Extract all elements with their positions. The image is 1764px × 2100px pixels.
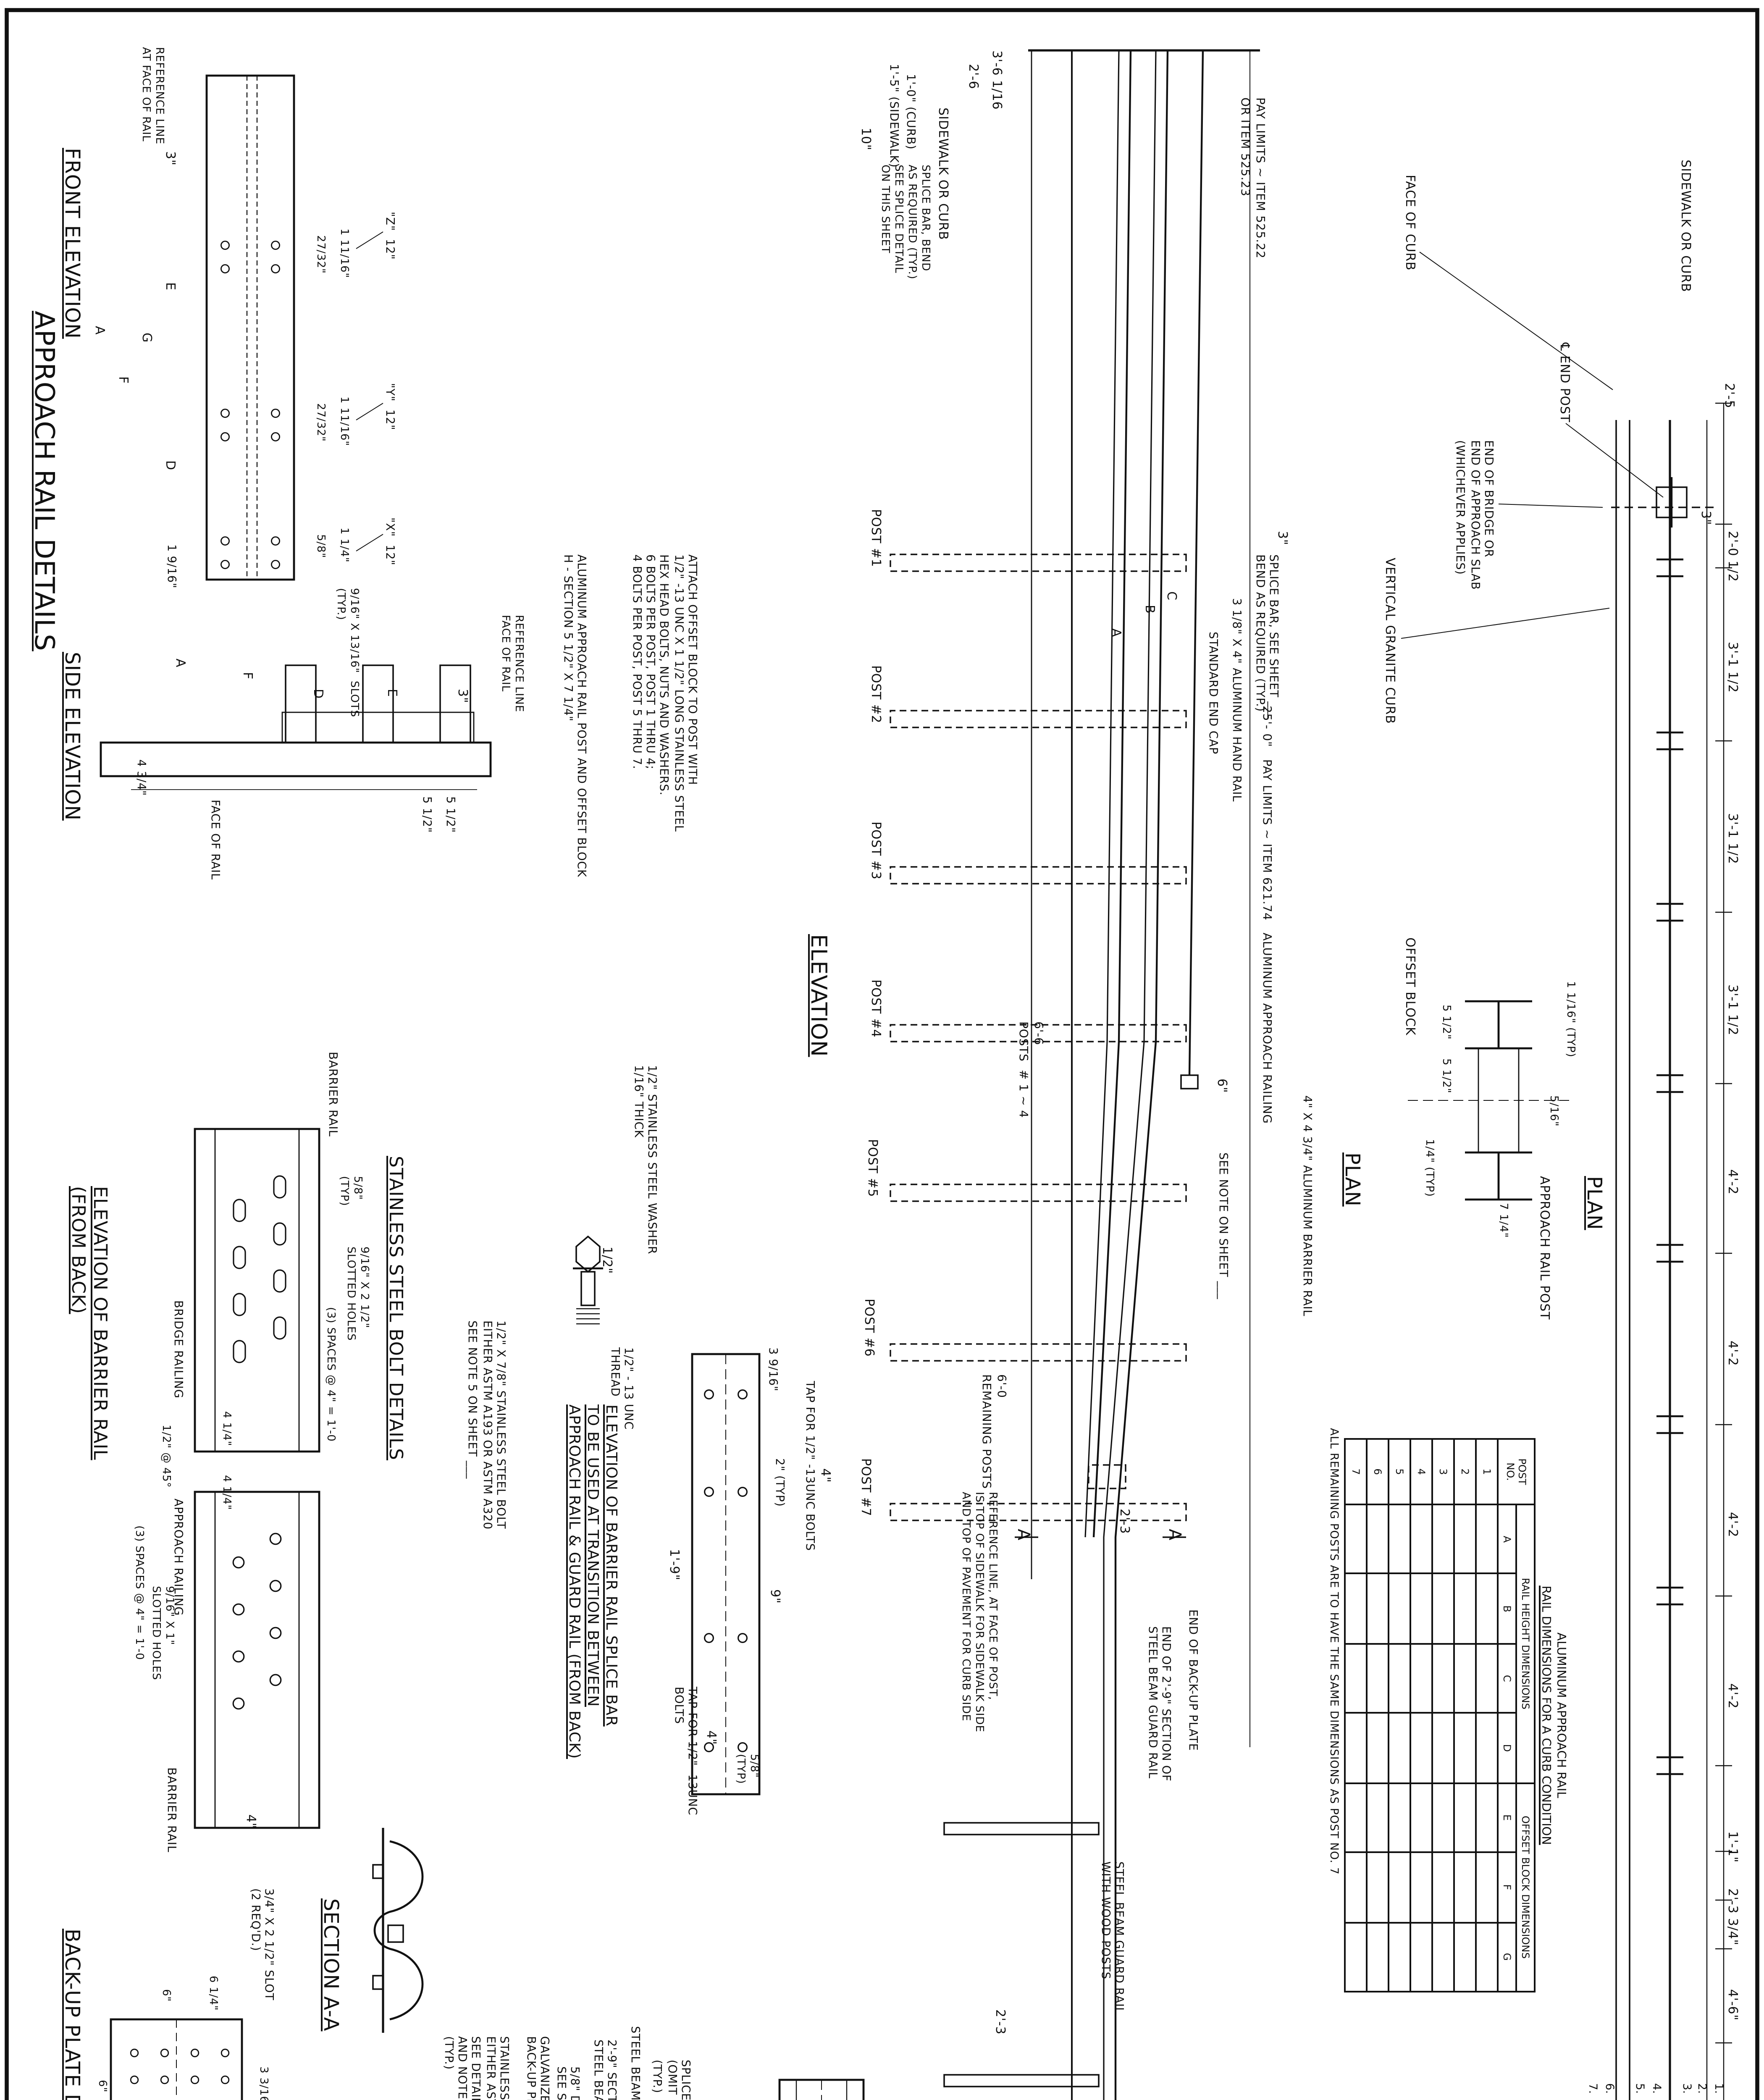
empty-dim-cell	[1476, 1643, 1498, 1713]
post-detail-dim-5-half-a: 5 1/2"	[1438, 1005, 1452, 1039]
post-detail-dim-7-1-4: 7 1/4"	[1495, 1203, 1509, 1238]
brb-slotted-holes-a: 9/16" X 2 1/2" SLOTTED HOLES	[343, 1247, 370, 1341]
empty-dim-cell	[1345, 1783, 1367, 1853]
empty-dim-cell	[1410, 1922, 1432, 1992]
se-dim-5-half-b: 5 1/2"	[420, 796, 433, 833]
empty-dim-cell	[1389, 1713, 1410, 1783]
post-detail-label-approach-rail-post: APPROACH RAIL POST	[1537, 1176, 1552, 1320]
se-dim-E: E	[384, 689, 400, 697]
empty-dim-cell	[1345, 1643, 1367, 1713]
elev-guard-rail-wood-posts: STEEL BEAM GUARD RAIL WITH WOOD POSTS	[1098, 1861, 1126, 2014]
elev-end-of-backup-plate: END OF BACK-UP PLATE	[1186, 1609, 1200, 1751]
empty-dim-cell	[1345, 1504, 1367, 1574]
empty-dim-cell	[1367, 1852, 1389, 1922]
plan-title: PLAN	[1582, 1176, 1606, 1230]
col-G: G	[1498, 1922, 1516, 1992]
bp-slot-2req: 3/4" X 2 1/2" SLOT (2 REQ'D.)	[248, 1888, 276, 2000]
empty-dim-cell	[1389, 1574, 1410, 1644]
sb-dim-4-b: 4"	[703, 1730, 719, 1745]
note-item-5: 5.THE COST OF ALL MATERIALS AND LABOR FO…	[1618, 2083, 1646, 2100]
se-title: SIDE ELEVATION	[60, 652, 84, 821]
se-face-of-rail: FACE OF RAIL	[208, 800, 222, 880]
elev-post-3: POST #3	[868, 822, 884, 879]
se-post-offset-label: ALUMINUM APPROACH RAIL POST AND OFFSET B…	[560, 554, 588, 877]
elev-splice-bar-note: SPLICE BAR, BEND AS REQUIRED (TYP.) SEE …	[877, 165, 931, 279]
col-C: C	[1498, 1643, 1516, 1713]
elev-section-marker-a-top: A	[1162, 1529, 1183, 1541]
elev-title: ELEVATION	[803, 934, 830, 1057]
aa-label-guard-rail: STEEL BEAM GUARD RAIL	[628, 2026, 642, 2100]
elev-post-2: POST #2	[868, 665, 884, 723]
se-dim-4-3-4: 4 3/4"	[134, 759, 148, 796]
brb-dim-4-1-4-b: 4 1/4"	[218, 1475, 232, 1510]
notes-block: NOTES 1.POST 1 THROUGH 7 SHALL BE EXTRUD…	[1570, 2083, 1747, 2100]
note-item-4: 4.SEE STANDARD G-1 FOR STEEL BEAM GUARD …	[1648, 2083, 1662, 2100]
post-detail-plan-title: PLAN	[1340, 1152, 1365, 1207]
brb-title: ELEVATION OF BARRIER RAIL (FROM BACK)	[66, 1186, 111, 1460]
sb-dim-1-9: 1'-9"	[667, 1549, 682, 1580]
col-B: B	[1498, 1574, 1516, 1644]
empty-dim-cell	[1454, 1922, 1476, 1992]
elev-label-barrier-rail: 4" X 4 3/4" ALUMINUM BARRIER RAIL	[1300, 1095, 1314, 1316]
empty-dim-cell	[1454, 1713, 1476, 1783]
sb-dim-4-a: 4"	[818, 1468, 833, 1483]
table-row: 2	[1454, 1439, 1476, 1992]
plan-label-granite-curb: VERTICAL GRANITE CURB	[1382, 558, 1398, 724]
elev-post-1: POST #1	[868, 509, 884, 567]
elev-label-hand-rail: 3 1/8" X 4" ALUMINUM HAND RAIL	[1229, 598, 1243, 802]
aa-label-2-9-section: 2'-9" SECTION OF STEEL BEAM GUARD RAIL	[591, 2040, 618, 2100]
plan-dim-4-2-2: 4'-2	[1725, 1341, 1740, 1366]
se-dim-5-half-a: 5 1/2"	[443, 796, 457, 833]
elev-end-of-2-9-section: END OF 2'-9" SECTION OF STEEL BEAM GUARD…	[1145, 1626, 1173, 1782]
elev-post-4: POST #4	[868, 979, 884, 1037]
notes-list: 1.POST 1 THROUGH 7 SHALL BE EXTRUDED ALU…	[1572, 2083, 1725, 2100]
note-number: 6.	[1602, 2083, 1616, 2100]
elev-pay-limits-25: 25'- 0" PAY LIMITS ~ ITEM 621.74 ALUMINU…	[1259, 706, 1273, 1124]
note-number: 1.	[1711, 2083, 1725, 2100]
elev-post-5: POST #5	[865, 1139, 880, 1197]
empty-dim-cell	[1432, 1504, 1454, 1574]
elev-dim-3: 3"	[1275, 531, 1290, 546]
elev-post-6: POST #6	[861, 1299, 877, 1357]
elev-dim-C: C	[1164, 591, 1179, 601]
fe-dim-1-11-16-b: 1 11/16"	[336, 396, 349, 446]
empty-dim-cell	[1432, 1713, 1454, 1783]
post-no-cell: 5	[1389, 1439, 1410, 1504]
group-rail-height: RAIL HEIGHT DIMENSIONS	[1516, 1504, 1535, 1783]
empty-dim-cell	[1410, 1852, 1432, 1922]
elev-dim-2-3-a: 2'-3	[1117, 1509, 1132, 1534]
fe-dim-A: A	[92, 326, 108, 335]
plan-dim-4-2-1: 4'-2	[1725, 1169, 1740, 1195]
notes-title: NOTES	[1730, 2083, 1747, 2100]
ssb-dim-half: 1/2"	[599, 1247, 615, 1274]
empty-dim-cell	[1389, 1643, 1410, 1713]
post-no-cell: 6	[1367, 1439, 1389, 1504]
ssb-title: STAINLESS STEEL BOLT DETAILS	[384, 1156, 407, 1460]
empty-dim-cell	[1389, 1504, 1410, 1574]
plan-dim-2-0-half: 2'-0 1/2	[1725, 531, 1740, 582]
table-note-curb: ALL REMAINING POSTS ARE TO HAVE THE SAME…	[1327, 1428, 1341, 1875]
sb-tap-note-a: TAP FOR 1/2" -13UNC BOLTS	[803, 1381, 816, 1551]
aa-label-conn-bolt: 5/8" DIA. CONNECTING BOLT AND WASHER SEE…	[554, 2066, 581, 2100]
empty-dim-cell	[1410, 1504, 1432, 1574]
ssb-washer-label: 1/2" STAINLESS STEEL WASHER 1/16" THICK	[631, 1065, 659, 1255]
sb-dim-3-9-16: 3 9/16"	[766, 1347, 780, 1391]
bp-title: BACK-UP PLATE DETAILS	[60, 1929, 84, 2100]
se-dim-A: A	[173, 659, 188, 667]
elev-dim-6-0: 6'-0 REMAINING POSTS	[979, 1374, 1008, 1489]
empty-dim-cell	[1389, 1783, 1410, 1853]
table-subtitle: RAIL DIMENSIONS FOR A CURB CONDITION	[1539, 1438, 1554, 1992]
fe-dim-3: 3"	[163, 151, 178, 166]
post-detail-dim-1-1-16: 1 1/16" (TYP)	[1562, 981, 1576, 1058]
plan-dim-4-6: 4'-6"	[1725, 1989, 1740, 2021]
sb-dim-2-typ: 2" (TYP)	[772, 1458, 786, 1507]
note-item-7: 7.DIMENSIONS SHOWN ARE FROM A REFERENCE …	[1572, 2083, 1600, 2100]
bp-dim-6-1-4: 6 1/4"	[205, 1976, 218, 2011]
brb-barrier-rail-a: BARRIER RAIL	[325, 1052, 339, 1137]
elev-dim-1-5-sidewalk: 1'-5" (SIDEWALK)	[887, 64, 900, 168]
brb-barrier-rail-b: BARRIER RAIL	[164, 1767, 178, 1853]
sb-dim-9: 9"	[767, 1589, 783, 1604]
brb-dim-5-8: 5/8" (TYP)	[336, 1176, 363, 1206]
post-detail-dim-5-16: 5/16"	[1546, 1095, 1559, 1126]
fe-tick-y: "Y" 12"	[383, 383, 396, 430]
fe-dim-E: E	[163, 282, 178, 291]
empty-dim-cell	[1432, 1783, 1454, 1853]
plan-label-sidewalk-or-curb: SIDEWALK OR CURB	[1678, 160, 1693, 292]
front-elev-title: FRONT ELEVATION	[60, 148, 84, 339]
plan-label-face-of-curb: FACE OF CURB	[1402, 175, 1418, 270]
table-curb-condition: ALUMINUM APPROACH RAILRAIL DIMENSIONS FO…	[1344, 1438, 1569, 1992]
fe-dim-D: D	[163, 460, 178, 470]
empty-dim-cell	[1410, 1713, 1432, 1783]
elev-dim-10: 10"	[858, 128, 874, 150]
fe-dim-1-9-16: 1 9/16"	[164, 544, 178, 588]
aa-title: SECTION A-A	[318, 1898, 343, 2031]
col-D: D	[1498, 1713, 1516, 1783]
bp-dim-6-b: 6"	[94, 2080, 108, 2092]
ssb-bolt-label: 1/2" X 7/8" STAINLESS STEEL BOLT EITHER …	[466, 1320, 507, 1530]
note-number: 2.	[1695, 2083, 1709, 2100]
page-scaler: 2'-53"2'-0 1/23'-1 1/23'-1 1/23'-1 1/24'…	[0, 0, 1764, 2100]
drawing-sheet: 2'-53"2'-0 1/23'-1 1/23'-1 1/23'-1 1/24'…	[0, 0, 1764, 2100]
elev-post-7: POST #7	[858, 1458, 874, 1516]
empty-dim-cell	[1367, 1783, 1389, 1853]
empty-dim-cell	[1454, 1643, 1476, 1713]
table-row: 1	[1476, 1439, 1498, 1992]
note-item-6: 6.DETAILS ARE SHOWN FOR TRANSITION TO A …	[1602, 2083, 1616, 2100]
empty-dim-cell	[1432, 1574, 1454, 1644]
empty-dim-cell	[1345, 1574, 1367, 1644]
empty-dim-cell	[1367, 1713, 1389, 1783]
empty-dim-cell	[1476, 1713, 1498, 1783]
se-dim-F: F	[240, 672, 255, 680]
note-item-2: 2.ALL STRUCTURAL STEEL SHALL BE AASHTO M…	[1695, 2083, 1709, 2100]
table-row: 6	[1367, 1439, 1389, 1992]
empty-dim-cell	[1345, 1852, 1367, 1922]
elev-dim-1-0-curb: 1'-0" (CURB)	[903, 74, 917, 150]
table-row: 4	[1410, 1439, 1432, 1992]
empty-dim-cell	[1476, 1574, 1498, 1644]
post-no-cell: 1	[1476, 1439, 1498, 1504]
empty-dim-cell	[1476, 1783, 1498, 1853]
table-row: 5	[1389, 1439, 1410, 1992]
plan-dim-3-1-half-3: 3'-1 1/2	[1725, 984, 1740, 1036]
post-detail-dim-5-half-b: 5 1/2"	[1438, 1058, 1452, 1093]
elev-dim-B: B	[1142, 605, 1158, 614]
fe-slots-note: 9/16" X 13/16" SLOTS (TYP.)	[333, 588, 360, 717]
elev-ref-line-note: REFERENCE LINE, AT FACE OF POST, IS TOP …	[958, 1492, 998, 1732]
table-row: 7	[1345, 1439, 1367, 1992]
col-post-no: POST NO.	[1498, 1439, 1535, 1504]
empty-dim-cell	[1454, 1852, 1476, 1922]
brb-spaces-b: (3) SPACES @ 4" = 1'-0	[131, 1525, 144, 1660]
note-item-3: 3.ALL ITEMS NOT OTHERWISE INDICATED SHAL…	[1665, 2083, 1693, 2100]
empty-dim-cell	[1345, 1922, 1367, 1992]
sb-dim-5-8-typ: 5/8" (TYP)	[733, 1754, 759, 1784]
sb-title: ELEVATION OF BARRIER RAIL SPLICE BAR TO …	[563, 1404, 618, 1759]
plan-dim-4-2-3: 4'-2	[1725, 1512, 1740, 1538]
brb-slotted-holes-b: 9/16" X 1" SLOTTED HOLES	[148, 1586, 175, 1680]
fe-dim-F: F	[115, 376, 131, 384]
fe-dim-27-32-a: 27/32"	[312, 235, 326, 274]
fe-tick-z: "Z" 12"	[383, 212, 396, 260]
fe-dim-27-32-b: 27/32"	[312, 403, 326, 442]
brb-dim-half-45: 1/2" @ 45°	[158, 1425, 171, 1488]
se-ref-line: REFERENCE LINE FACE OF RAIL	[498, 615, 524, 712]
empty-dim-cell	[1476, 1922, 1498, 1992]
fe-tick-x: "X" 12"	[383, 517, 396, 565]
empty-dim-cell	[1454, 1504, 1476, 1574]
empty-dim-cell	[1389, 1852, 1410, 1922]
empty-dim-cell	[1410, 1574, 1432, 1644]
sheet-main-title: APPROACH RAIL DETAILS	[28, 311, 60, 651]
empty-dim-cell	[1454, 1574, 1476, 1644]
empty-dim-cell	[1476, 1852, 1498, 1922]
col-F: F	[1498, 1852, 1516, 1922]
empty-dim-cell	[1432, 1852, 1454, 1922]
aa-label-ss-bolts: STAINLESS STEEL BOLTS EITHER ASTM A193 O…	[441, 2036, 511, 2100]
se-attach-note: ATTACH OFFSET BLOCK TO POST WITH 1/2" -1…	[629, 554, 699, 832]
elev-pay-limits-end: PAY LIMITS ~ ITEM 525.22 OR ITEM 525.23	[1238, 97, 1267, 259]
brb-dim-4: 4"	[243, 1814, 259, 1829]
bp-dim-6-a: 6"	[158, 1989, 171, 2002]
elev-see-note: SEE NOTE ON SHEET ___	[1216, 1152, 1230, 1299]
brb-dim-4-1-4-a: 4 1/4"	[218, 1411, 232, 1446]
empty-dim-cell	[1410, 1783, 1432, 1853]
rail-dimensions-table: POST NO.RAIL HEIGHT DIMENSIONSOFFSET BLO…	[1344, 1438, 1536, 1992]
brb-spaces-a: (3) SPACES @ 4" = 1'-0	[323, 1307, 336, 1442]
fe-dim-5-8: 5/8"	[312, 534, 326, 558]
plan-dim-2-3-3-4: 2'-3 3/4"	[1725, 1888, 1740, 1945]
post-no-cell: 3	[1432, 1439, 1454, 1504]
post-detail-label-offset-block: OFFSET BLOCK	[1402, 937, 1418, 1036]
post-no-cell: 7	[1345, 1439, 1367, 1504]
note-number: 3.	[1665, 2083, 1693, 2100]
sb-tap-note-b: TAP FOR 1/2" -13UNC BOLTS	[671, 1687, 699, 1815]
plan-label-end-post: ℄ END POST	[1557, 343, 1572, 423]
se-dim-D: D	[310, 689, 326, 699]
plan-dim-2-5: 2'-5	[1722, 383, 1737, 409]
empty-dim-cell	[1410, 1643, 1432, 1713]
empty-dim-cell	[1432, 1643, 1454, 1713]
empty-dim-cell	[1367, 1922, 1389, 1992]
post-no-cell: 4	[1410, 1439, 1432, 1504]
elev-dim-A: A	[1108, 628, 1124, 637]
note-number: 5.	[1618, 2083, 1646, 2100]
note-item-1: 1.POST 1 THROUGH 7 SHALL BE EXTRUDED ALU…	[1711, 2083, 1725, 2100]
col-E: E	[1498, 1783, 1516, 1853]
elev-section-marker-a-bottom: A	[1011, 1529, 1032, 1541]
col-A: A	[1498, 1504, 1516, 1574]
post-no-cell: 2	[1454, 1439, 1476, 1504]
fe-dim-1-11-16-a: 1 11/16"	[336, 228, 349, 278]
aa-label-splice-bar-omit: SPLICE BAR (OMIT DIMPLES) (TYP.)	[651, 2060, 692, 2100]
se-dim-3: 3"	[455, 689, 470, 703]
note-number: 4.	[1648, 2083, 1662, 2100]
fe-dim-1-1-4: 1 1/4"	[336, 528, 349, 562]
empty-dim-cell	[1367, 1574, 1389, 1644]
plan-dim-3-1-half-2: 3'-1 1/2	[1725, 813, 1740, 864]
plan-dim-4-2-4: 4'-2	[1725, 1683, 1740, 1709]
post-detail-dim-1-4: 1/4" (TYP)	[1421, 1139, 1435, 1197]
empty-dim-cell	[1367, 1504, 1389, 1574]
table-title: ALUMINUM APPROACH RAIL	[1554, 1438, 1569, 1992]
note-number: 7.	[1572, 2083, 1600, 2100]
empty-dim-cell	[1476, 1504, 1498, 1574]
empty-dim-cell	[1367, 1643, 1389, 1713]
portrait-scan: 2'-53"2'-0 1/23'-1 1/23'-1 1/23'-1 1/24'…	[0, 0, 1764, 2100]
empty-dim-cell	[1432, 1922, 1454, 1992]
elev-dim-3-6-1-16: 3'-6 1/16	[989, 50, 1005, 110]
fe-ref-line: REFERENCE LINE AT FACE OF RAIL	[138, 47, 165, 144]
elev-label-end-cap: STANDARD END CAP	[1206, 632, 1220, 754]
plan-dim-1-1: 1'-1"	[1725, 1831, 1740, 1863]
empty-dim-cell	[1345, 1713, 1367, 1783]
fe-dim-G: G	[139, 333, 155, 343]
elev-dim-6-6: 6'-6 POSTS # 1 ~ 4	[1016, 1021, 1045, 1118]
elev-dim-6: 6"	[1214, 1079, 1230, 1093]
elev-dim-2-3-b: 2'-3	[992, 2009, 1008, 2035]
plan-note-end-of-bridge: END OF BRIDGE OR END OF APPROACH SLAB (W…	[1454, 440, 1495, 590]
brb-bridge-railing: BRIDGE RAILING	[171, 1300, 185, 1399]
table-row: 3	[1432, 1439, 1454, 1992]
aa-label-galv-backup: GALVANIZED BACK-UP PLATE	[523, 2036, 551, 2100]
empty-dim-cell	[1454, 1783, 1476, 1853]
plan-dim-3-1-half-1: 3'-1 1/2	[1725, 642, 1740, 693]
group-offset-block: OFFSET BLOCK DIMENSIONS	[1516, 1783, 1535, 1992]
elev-dim-2-6: 2'-6	[966, 64, 981, 89]
plan-dim-3in: 3"	[1698, 511, 1714, 525]
elev-sidewalk-or-curb: SIDEWALK OR CURB	[935, 108, 951, 240]
elev-splice-bar-note-2: SPLICE BAR, SEE SHEET ___ BEND AS REQUIR…	[1252, 554, 1280, 719]
empty-dim-cell	[1389, 1922, 1410, 1992]
bp-dim-3-3-16: 3 3/16"	[255, 2066, 269, 2100]
